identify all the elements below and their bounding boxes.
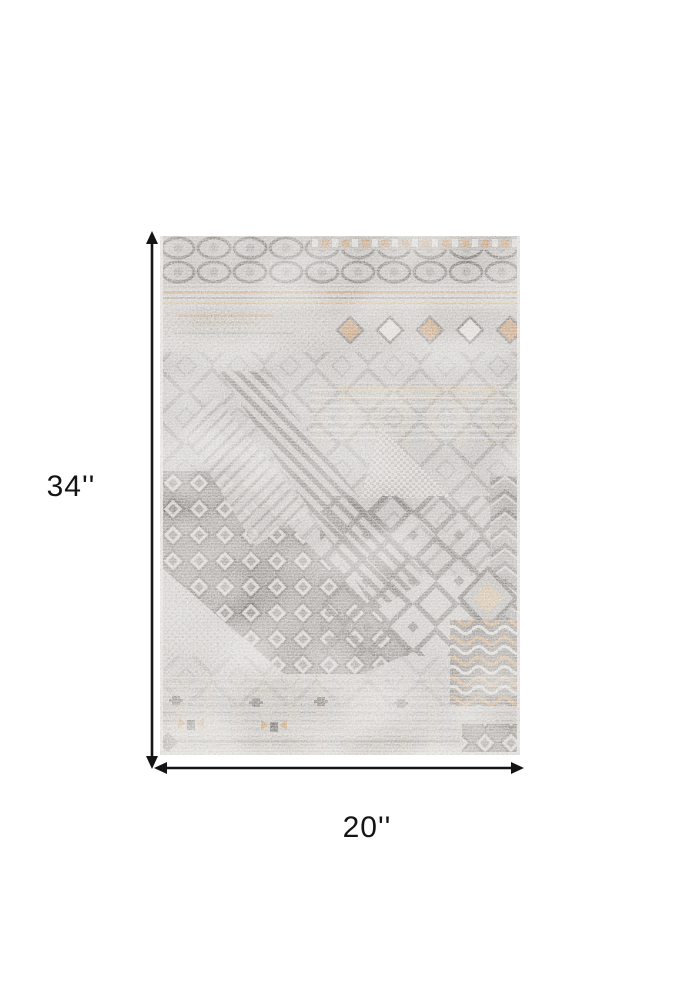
dimension-diagram: 34'' 20'' (0, 0, 682, 1000)
arrow-left-icon (154, 762, 167, 774)
width-dimension-label: 20'' (305, 811, 429, 845)
arrow-right-icon (511, 762, 524, 774)
rug-product-image (160, 236, 520, 755)
arrow-up-icon (146, 231, 158, 244)
height-dimension-label: 34'' (28, 470, 114, 504)
height-dimension-arrow (143, 230, 161, 770)
width-dimension-arrow (153, 759, 525, 777)
rug-artwork (160, 236, 520, 755)
